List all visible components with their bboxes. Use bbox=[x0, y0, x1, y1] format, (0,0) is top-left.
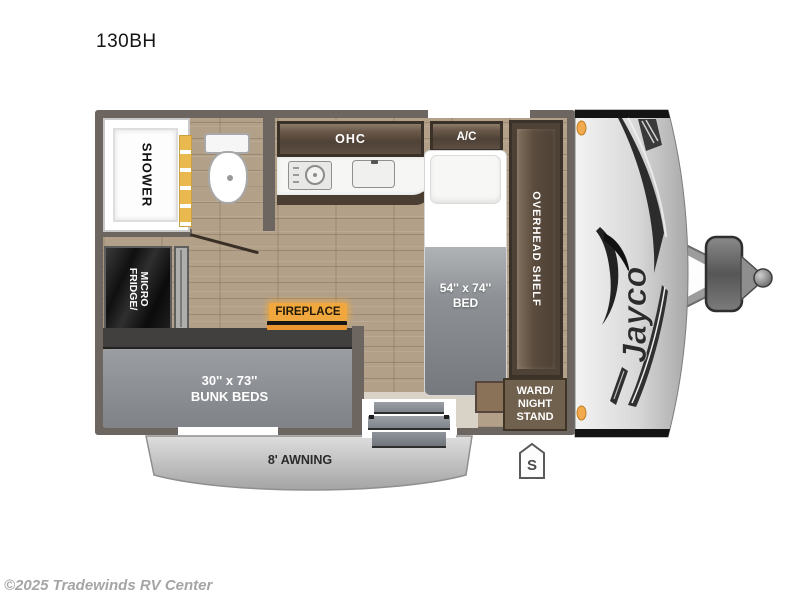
overhead-cabinet: OHC bbox=[277, 121, 424, 157]
bed-label: 54'' x 74'' BED bbox=[425, 281, 506, 311]
stabilizer-marker: S bbox=[518, 442, 546, 480]
step-tread bbox=[368, 416, 450, 430]
cooktop bbox=[288, 161, 332, 190]
awning-label: 8' AWNING bbox=[220, 453, 380, 467]
cooktop-knobs bbox=[293, 167, 299, 185]
toilet-drain-icon bbox=[227, 175, 233, 181]
overhead-shelf: OVERHEAD SHELF bbox=[509, 120, 563, 378]
bed-foot-cabinet bbox=[475, 381, 505, 413]
floorplan-page: 130BH SHOWER FRIDGE/ MICRO 30'' x 73'' B… bbox=[0, 0, 800, 600]
ward-label-line2: NIGHT bbox=[518, 398, 552, 411]
window-top bbox=[428, 110, 530, 118]
clearance-light bbox=[577, 406, 586, 420]
cap-bottom-band bbox=[575, 429, 670, 437]
ohc-label: OHC bbox=[335, 132, 366, 146]
bed-name-label: BED bbox=[425, 296, 506, 311]
clearance-light bbox=[577, 121, 586, 135]
towel-rail bbox=[179, 135, 192, 227]
shower-label: SHOWER bbox=[139, 143, 154, 208]
jayco-logo: Jayco bbox=[616, 267, 654, 363]
fridge-micro-cabinet: FRIDGE/ MICRO bbox=[104, 246, 172, 331]
bed: 54'' x 74'' BED bbox=[424, 150, 507, 396]
fridge-end-panel bbox=[174, 246, 189, 331]
faucet-icon bbox=[371, 160, 378, 164]
burner-icon bbox=[305, 165, 325, 185]
ward-label-line1: WARD/ bbox=[517, 385, 554, 398]
toilet bbox=[208, 151, 248, 204]
ward-nightstand: WARD/ NIGHT STAND bbox=[503, 378, 567, 431]
page-title: 130BH bbox=[96, 31, 157, 53]
stabilizer-letter: S bbox=[527, 457, 537, 474]
ac-label: A/C bbox=[457, 131, 477, 143]
window-bottom bbox=[178, 427, 278, 435]
step-tab bbox=[369, 415, 374, 419]
step-tread bbox=[374, 402, 444, 414]
bed-blanket bbox=[425, 247, 506, 395]
cap-top-band bbox=[575, 110, 670, 118]
fridge-micro-label: FRIDGE/ MICRO bbox=[127, 267, 149, 310]
hitch-coupler bbox=[706, 237, 742, 311]
front-cap: Jayco bbox=[570, 105, 800, 450]
fireplace-unit bbox=[267, 321, 347, 330]
bunk-backrest bbox=[103, 328, 356, 349]
kitchen-sink bbox=[352, 160, 395, 188]
ac-unit: A/C bbox=[430, 121, 503, 152]
bunk-name-label: BUNK BEDS bbox=[103, 389, 356, 405]
copyright-watermark: ©2025 Tradewinds RV Center bbox=[4, 577, 212, 594]
step-tread bbox=[372, 432, 446, 448]
bathroom-divider-wall bbox=[263, 110, 275, 231]
shower: SHOWER bbox=[103, 118, 190, 232]
fireplace-label: FIREPLACE bbox=[269, 303, 347, 321]
bed-pillow bbox=[430, 155, 501, 204]
ward-label-line3: STAND bbox=[516, 411, 553, 424]
bed-size-label: 54'' x 74'' bbox=[425, 281, 506, 296]
bunk-beds: 30'' x 73'' BUNK BEDS bbox=[103, 349, 356, 428]
hitch-ball bbox=[754, 269, 772, 287]
step-tab bbox=[444, 415, 449, 419]
overhead-shelf-label: OVERHEAD SHELF bbox=[530, 191, 542, 306]
bunk-size-label: 30'' x 73'' bbox=[103, 373, 356, 389]
